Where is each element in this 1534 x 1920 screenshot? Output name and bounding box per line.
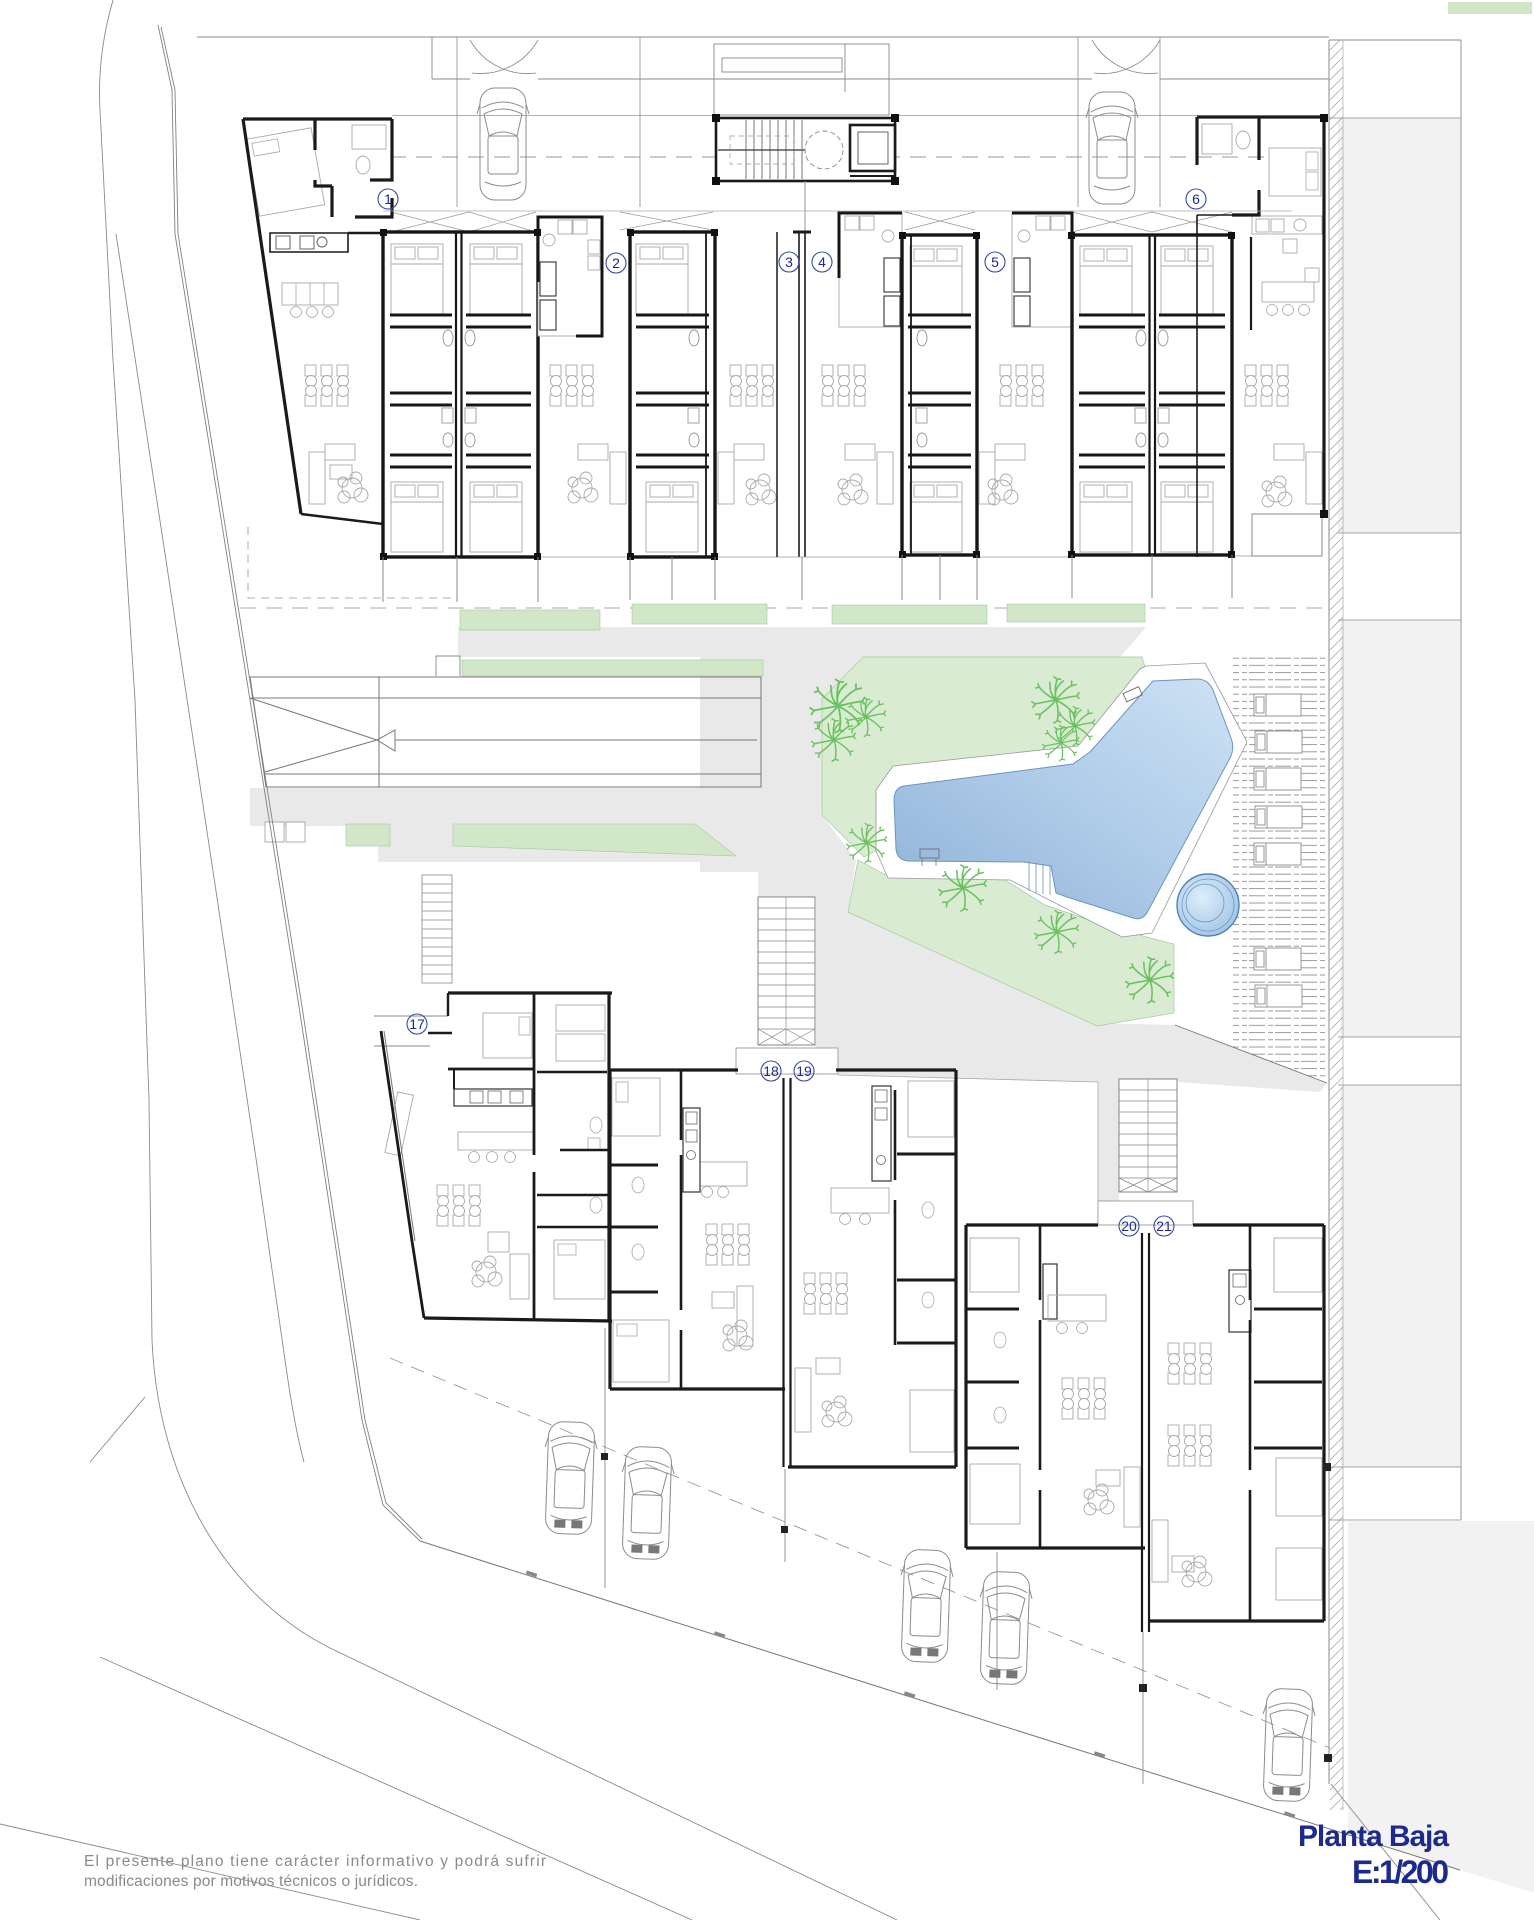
svg-text:4: 4: [818, 254, 826, 270]
svg-text:El presente plano tiene caráct: El presente plano tiene carácter informa…: [84, 1853, 546, 1870]
svg-text:18: 18: [763, 1063, 779, 1079]
svg-text:5: 5: [991, 254, 999, 270]
svg-text:E:1/200: E:1/200: [1352, 1854, 1449, 1890]
svg-text:modificaciones por motivos téc: modificaciones por motivos técnicos o ju…: [84, 1873, 418, 1890]
svg-text:1: 1: [384, 191, 392, 207]
svg-text:19: 19: [796, 1063, 812, 1079]
svg-text:3: 3: [785, 254, 793, 270]
svg-text:20: 20: [1121, 1218, 1137, 1234]
svg-text:Planta Baja: Planta Baja: [1298, 1820, 1449, 1853]
svg-text:17: 17: [409, 1016, 425, 1032]
svg-text:2: 2: [612, 255, 620, 271]
svg-text:6: 6: [1192, 191, 1200, 207]
svg-text:21: 21: [1156, 1218, 1172, 1234]
